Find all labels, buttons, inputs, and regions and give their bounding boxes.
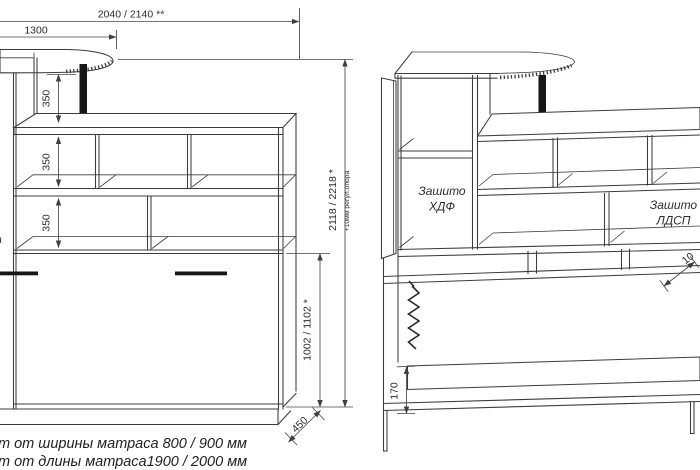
dim-clipped-right-text: 10 [680, 250, 697, 267]
front-view: н 2040 / 2140 ** 1300 350 350 350 [0, 8, 353, 445]
cabinet-top [14, 114, 296, 135]
bed-platform [384, 357, 700, 411]
dim-bed-height: 1002 / 1102 * [286, 254, 330, 408]
label-hdf-line2: ХДФ [428, 200, 455, 214]
dim-depth: 450 [285, 408, 325, 446]
open-door [382, 78, 397, 259]
dim-bar-length: 1300 [0, 25, 117, 50]
shelf-unit-side: Зашито ЛДСП [398, 108, 700, 257]
bed-front-panel [0, 272, 283, 405]
dim-platform-height-text: 170 [389, 382, 401, 400]
under-frame [384, 249, 700, 404]
footnote-line1: т от ширины матраса 800 / 900 мм [0, 436, 247, 452]
dim-depth-text: 450 [289, 414, 310, 435]
label-ldsp-line2: ЛДСП [655, 214, 690, 228]
shelf-row-2 [14, 196, 296, 254]
dim-shelf-1-text: 350 [41, 90, 53, 108]
clipped-text-fragment: н [0, 234, 2, 246]
dim-total-height-note: +10мм регул.опора [344, 170, 351, 231]
mattress-slats [408, 357, 700, 390]
dim-clipped-right: 10 [660, 250, 699, 291]
bar-counter [0, 50, 113, 73]
dim-total-height: 2118 / 2218 * +10мм регул.опора [118, 60, 353, 408]
footnote-line2: т от длины матраса1900 / 2000 мм [0, 454, 247, 470]
drawing-canvas: н 2040 / 2140 ** 1300 350 350 350 [0, 0, 700, 470]
technical-drawing: н 2040 / 2140 ** 1300 350 350 350 [0, 0, 700, 470]
bed-handle-left [0, 272, 38, 276]
dim-shelf-3: 350 [41, 199, 59, 248]
shelf-row-1 [14, 135, 296, 197]
bar-counter-side [395, 52, 575, 114]
dim-bar-length-text: 1300 [24, 25, 48, 37]
cabinet-walls [14, 114, 297, 410]
plinth [0, 409, 291, 425]
gas-lift-mechanism [409, 281, 420, 349]
side-view: Зашито ХДФ [382, 52, 700, 451]
dim-shelf-3-text: 350 [41, 214, 53, 232]
dim-shelf-2-text: 350 [41, 153, 53, 171]
footnotes: т от ширины матраса 800 / 900 мм т от дл… [0, 436, 247, 470]
dim-bed-height-text: 1002 / 1102 * [302, 299, 314, 361]
label-hdf-line1: Зашито [418, 184, 466, 198]
label-ldsp-line1: Зашито [650, 198, 698, 212]
tall-cabinet: Зашито ХДФ [398, 76, 478, 363]
bed-handle-right [175, 272, 227, 276]
dim-shelf-2: 350 [41, 137, 59, 187]
dim-total-width-text: 2040 / 2140 ** [98, 9, 165, 21]
dim-total-height-text: 2118 / 2218 * [327, 169, 339, 231]
